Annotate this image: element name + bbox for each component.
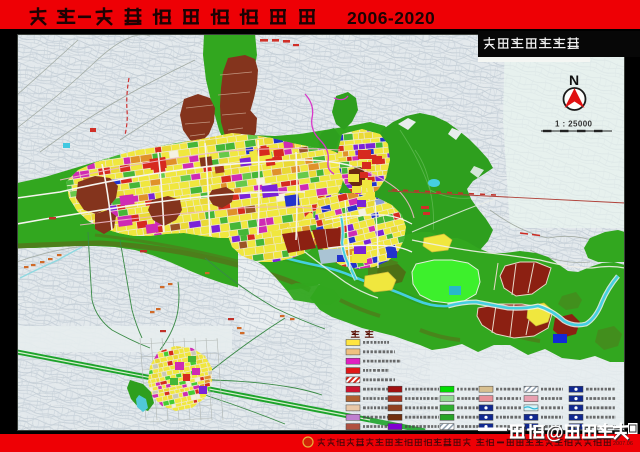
svg-text:N: N bbox=[569, 72, 579, 88]
svg-text:2007.06: 2007.06 bbox=[613, 441, 633, 447]
svg-text:1 : 25000: 1 : 25000 bbox=[555, 120, 593, 129]
svg-text:2006-2020: 2006-2020 bbox=[347, 8, 435, 28]
svg-text:@: @ bbox=[546, 423, 564, 443]
